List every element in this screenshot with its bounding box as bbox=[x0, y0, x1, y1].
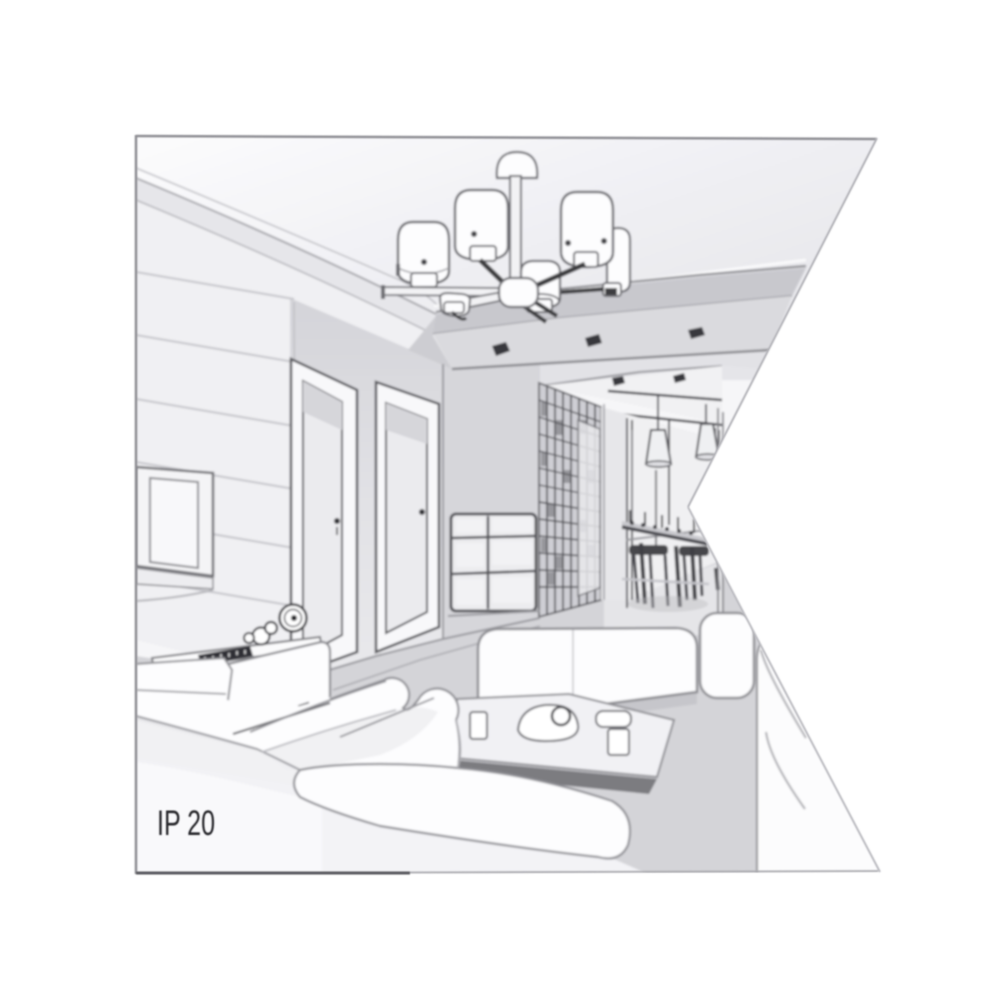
svg-text:IP 20: IP 20 bbox=[157, 804, 215, 843]
